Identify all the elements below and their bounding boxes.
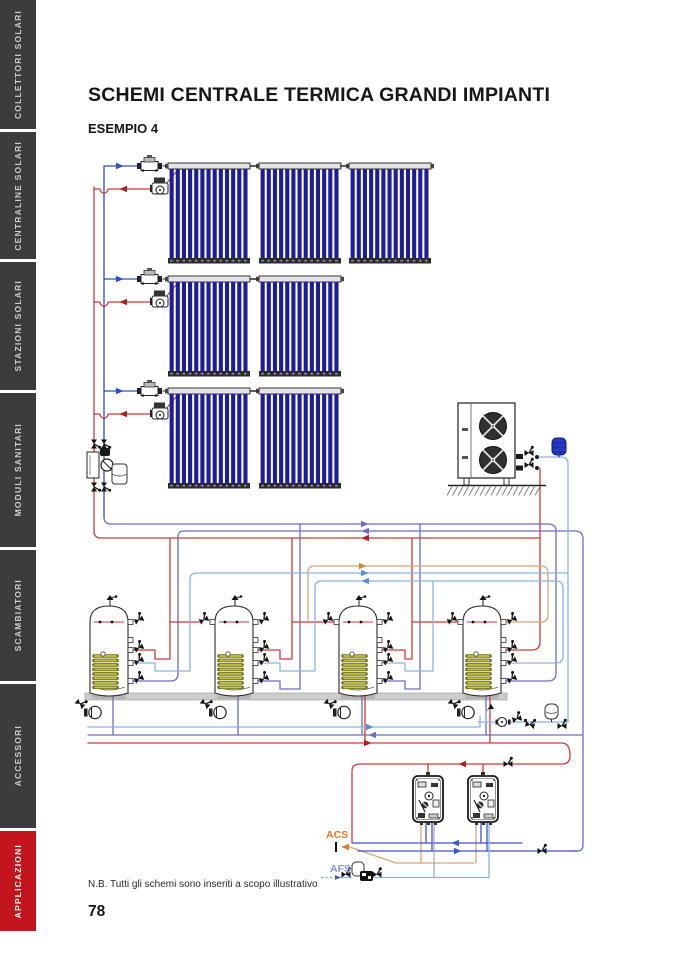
heat-pump-unit <box>447 403 566 496</box>
solar-pump-station-1 <box>137 155 168 194</box>
manifold-assembly <box>488 704 567 729</box>
catalog-page: COLLETTORI SOLARICENTRALINE SOLARISTAZIO… <box>0 0 678 959</box>
afs-label: AFS <box>330 863 351 875</box>
collector-row-1 <box>165 163 434 264</box>
flow-arrows <box>116 163 466 880</box>
thermal-plant-schematic: ACSAFS <box>0 0 678 959</box>
fresh-water-module-1 <box>413 772 443 825</box>
solar-expansion-station <box>87 440 127 492</box>
fresh-water-module-2 <box>468 772 498 825</box>
collector-row-3 <box>165 388 344 489</box>
page-number: 78 <box>88 903 105 921</box>
solar-pump-station-3 <box>137 380 168 419</box>
acs-label: ACS <box>326 829 348 841</box>
circuit-valves <box>504 757 547 854</box>
storage-tank-1 <box>90 595 145 696</box>
collector-row-2 <box>165 276 344 377</box>
solar-pump-station-2 <box>137 268 168 307</box>
footnote: N.B. Tutti gli schemi sono inseriti a sc… <box>88 879 318 890</box>
plant-room-floor <box>85 693 507 700</box>
